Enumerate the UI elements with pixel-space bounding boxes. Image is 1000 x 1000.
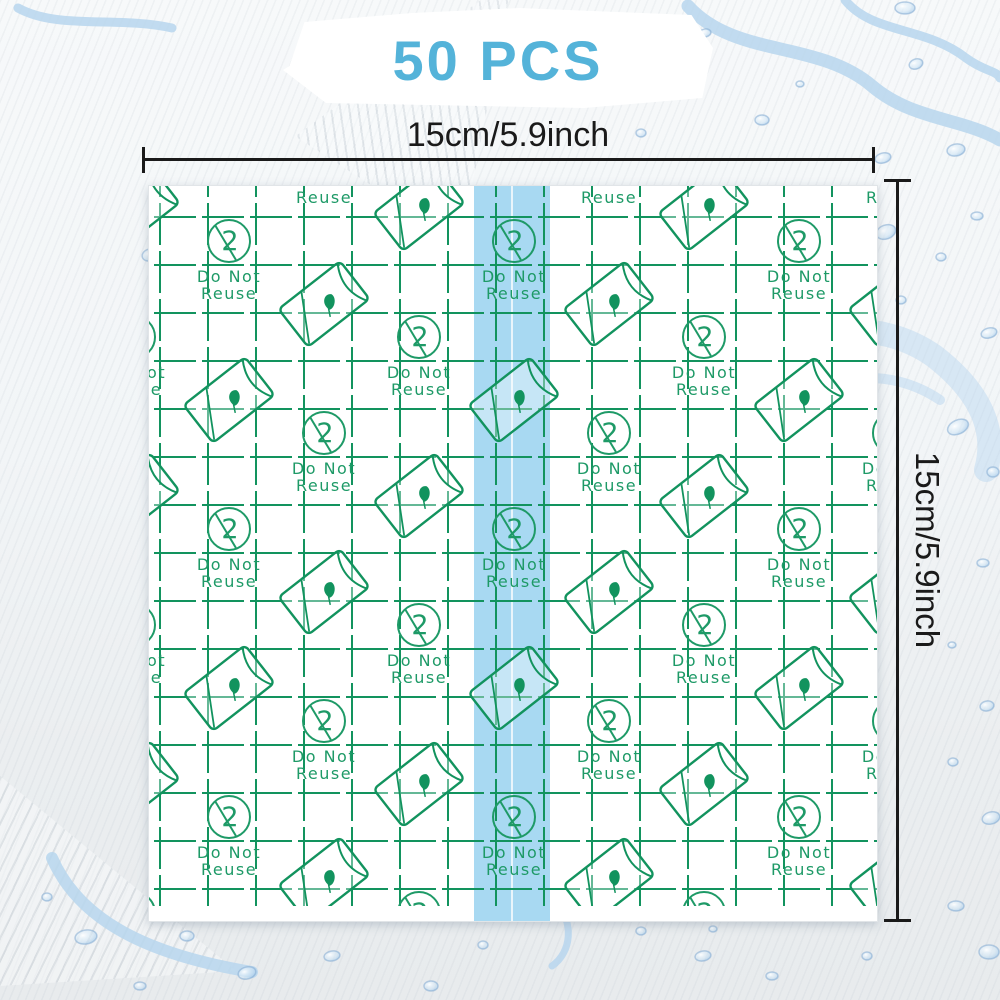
water-droplet — [424, 981, 438, 991]
water-droplet — [936, 253, 946, 261]
water-droplet — [478, 941, 488, 949]
water-droplet — [709, 926, 717, 932]
no-reuse-icon — [577, 186, 641, 207]
width-dimension-tick-right — [872, 147, 875, 173]
width-dimension-line — [143, 158, 874, 161]
water-droplet — [946, 143, 966, 158]
water-droplet — [755, 115, 769, 125]
water-droplet — [237, 965, 257, 981]
transparent-film-product: 2 Do Not Reuse — [148, 185, 878, 922]
water-droplet — [180, 931, 194, 941]
height-dimension-label: 15cm/5.9inch — [908, 400, 946, 700]
water-droplet — [948, 901, 964, 911]
water-droplet — [323, 950, 340, 963]
height-dimension-tick-top — [884, 179, 911, 182]
piece-count-label: 50 PCS — [393, 28, 604, 93]
water-droplet — [134, 982, 146, 990]
water-droplet — [636, 927, 646, 935]
water-droplet — [987, 467, 999, 477]
no-reuse-icon — [292, 186, 356, 207]
water-droplet — [980, 326, 998, 340]
water-droplet — [945, 416, 971, 438]
water-droplet — [74, 928, 98, 946]
width-dimension-tick-left — [142, 147, 145, 173]
water-droplet — [948, 642, 956, 648]
water-droplet — [874, 151, 892, 165]
water-droplet — [977, 559, 989, 567]
water-droplet — [979, 945, 999, 959]
water-droplet — [42, 893, 52, 901]
height-dimension-tick-bottom — [884, 919, 911, 922]
product-image: 50 PCS 15cm/5.9inch 15cm/5.9inch 2 Do No… — [0, 0, 1000, 1000]
water-droplet — [694, 950, 711, 963]
water-droplet — [895, 2, 915, 14]
water-droplet — [908, 57, 925, 71]
water-droplet — [948, 758, 958, 766]
water-droplet — [862, 952, 872, 960]
water-droplet — [981, 810, 1000, 826]
water-droplet — [979, 700, 995, 712]
water-droplet — [971, 212, 983, 220]
piece-count-banner: 50 PCS — [283, 8, 713, 108]
water-droplet — [766, 972, 778, 980]
height-dimension-line — [896, 179, 899, 922]
width-dimension-label: 15cm/5.9inch — [358, 116, 658, 155]
water-droplet — [796, 81, 804, 87]
